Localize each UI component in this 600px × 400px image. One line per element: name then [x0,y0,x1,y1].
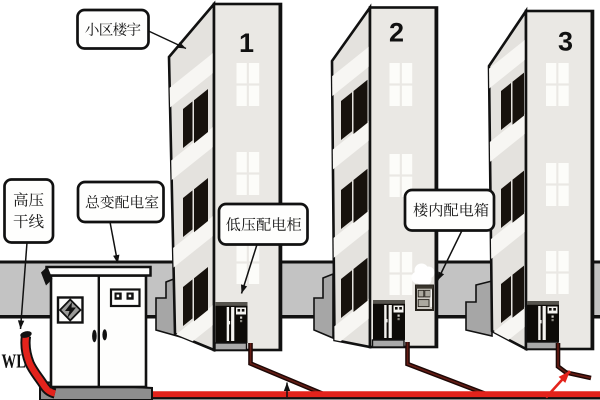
svg-text:1: 1 [239,28,254,58]
svg-text:3: 3 [558,27,573,57]
svg-text:2: 2 [389,18,404,48]
svg-text:WL: WL [2,351,27,373]
